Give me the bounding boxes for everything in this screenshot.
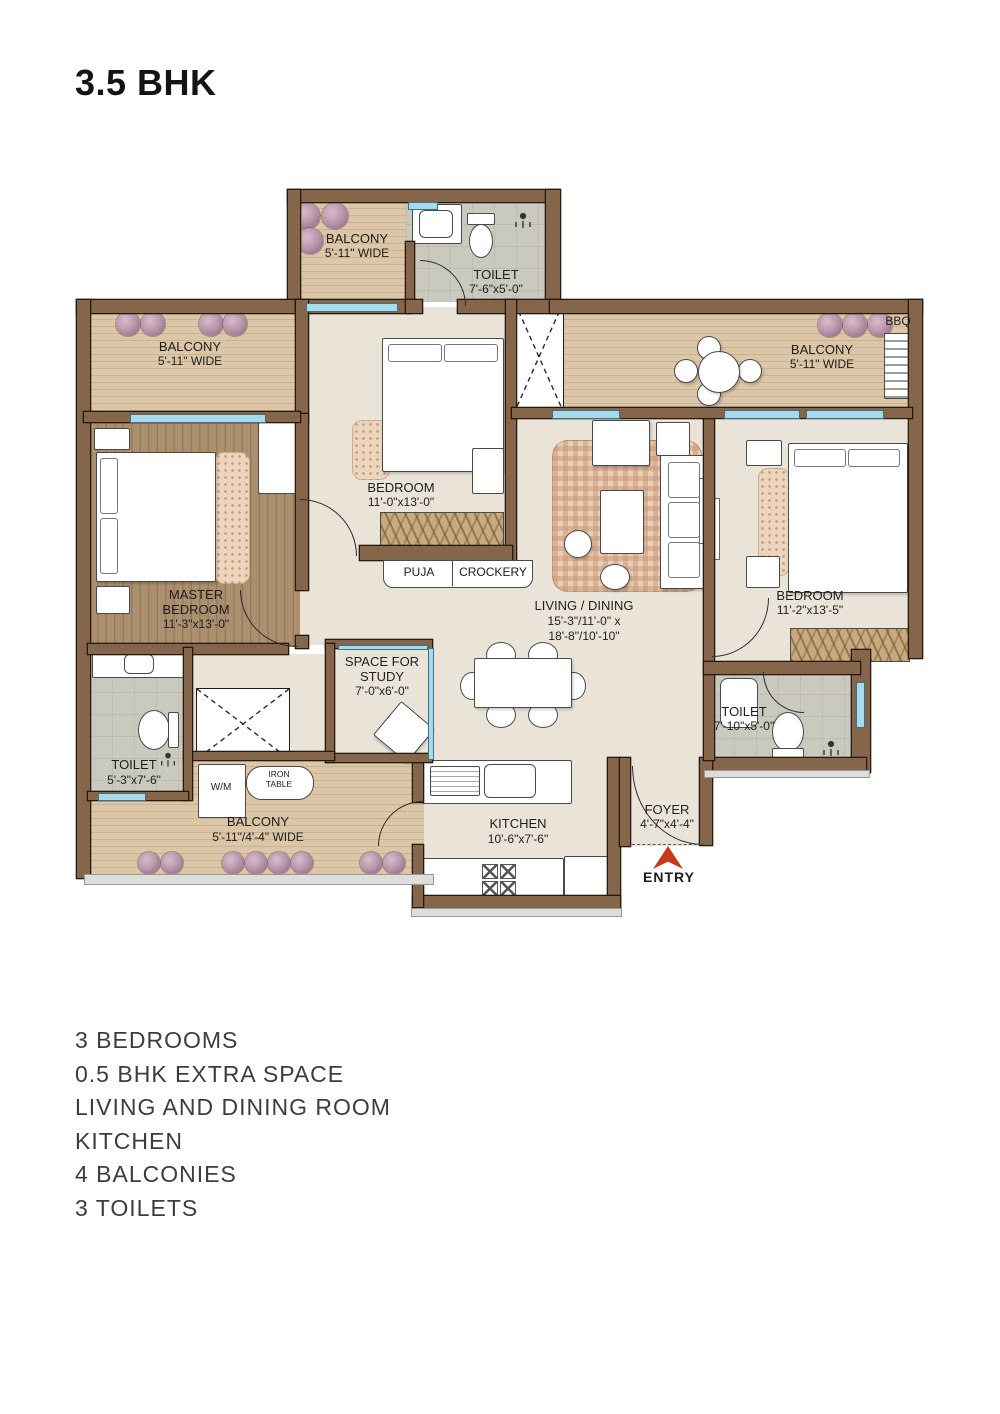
unit-divider bbox=[452, 560, 453, 586]
pillow bbox=[100, 458, 118, 514]
nightstand bbox=[94, 428, 130, 450]
pillow bbox=[100, 518, 118, 574]
room-dims: 4'-7"x4'-4" bbox=[640, 818, 694, 831]
feature-item: LIVING AND DINING ROOM bbox=[75, 1091, 391, 1125]
window bbox=[724, 410, 800, 419]
stool bbox=[600, 564, 630, 590]
bbq-grill bbox=[884, 333, 910, 399]
plant-icon bbox=[138, 852, 160, 874]
wall bbox=[288, 190, 558, 202]
sofa-cushion bbox=[668, 542, 700, 578]
sink-basin bbox=[419, 210, 453, 238]
stool bbox=[564, 530, 592, 558]
puja-label: PUJA bbox=[404, 566, 435, 579]
plant-icon bbox=[818, 313, 842, 337]
wall bbox=[909, 300, 922, 658]
entry-arrow-icon bbox=[653, 846, 683, 869]
shower-icon bbox=[818, 740, 844, 760]
sink-basin bbox=[124, 654, 154, 674]
room-label: BALCONY bbox=[159, 340, 221, 354]
window bbox=[306, 303, 398, 312]
plant-icon bbox=[843, 313, 867, 337]
room-label: BEDROOM bbox=[162, 603, 229, 617]
room-dims: 11'-3"x13'-0" bbox=[163, 618, 229, 631]
plant-icon bbox=[268, 852, 290, 874]
window bbox=[98, 793, 146, 801]
room-dims: 5'-11" WIDE bbox=[790, 358, 854, 371]
wall bbox=[296, 636, 308, 648]
shaft-x bbox=[514, 302, 564, 412]
toilet-wc-bowl bbox=[772, 712, 804, 752]
plant-icon bbox=[141, 312, 165, 336]
feature-item: KITCHEN bbox=[75, 1125, 391, 1159]
sofa-cushion bbox=[668, 502, 700, 538]
toilet-wc-tank bbox=[168, 712, 179, 748]
pillow bbox=[444, 344, 498, 362]
entry-threshold bbox=[632, 844, 702, 845]
room-dims: 11'-2"x13'-5" bbox=[777, 604, 843, 617]
room-label: LIVING / DINING bbox=[535, 599, 634, 613]
shaft-x-lines bbox=[197, 689, 289, 759]
balcony-chair bbox=[674, 359, 698, 383]
pillow bbox=[388, 344, 442, 362]
balcony-round-table bbox=[698, 351, 740, 393]
room-dims: 10'-6"x7'-6" bbox=[488, 833, 548, 846]
feature-item: 3 TOILETS bbox=[75, 1192, 391, 1226]
shower-icon bbox=[510, 212, 536, 232]
room-label: TOILET bbox=[473, 268, 518, 282]
room-label: FOYER bbox=[645, 803, 690, 817]
room-dims: 7'-0"x6'-0" bbox=[355, 685, 409, 698]
plant-icon bbox=[322, 203, 348, 229]
floor-plan-page: 3.5 BHK bbox=[0, 0, 1000, 1414]
wall bbox=[184, 648, 192, 800]
window bbox=[806, 410, 884, 419]
room-label: BEDROOM bbox=[776, 589, 843, 603]
wall bbox=[326, 754, 432, 762]
hob-burner bbox=[482, 881, 498, 896]
hob-burner bbox=[500, 881, 516, 896]
bedroom-top-desk bbox=[472, 448, 504, 494]
plant-icon bbox=[222, 852, 244, 874]
plant-icon bbox=[291, 852, 313, 874]
plant-icon bbox=[223, 312, 247, 336]
room-label: BALCONY bbox=[227, 815, 289, 829]
wall bbox=[413, 758, 423, 802]
pillow bbox=[794, 449, 846, 467]
dining-table bbox=[474, 658, 572, 708]
plant-icon bbox=[383, 852, 405, 874]
room-label: SPACE FOR bbox=[345, 655, 419, 669]
wm-label: W/M bbox=[211, 782, 232, 793]
wall bbox=[288, 190, 300, 312]
nightstand bbox=[746, 556, 780, 588]
plant-icon bbox=[199, 312, 223, 336]
glass-partition bbox=[428, 648, 434, 760]
room-label: STUDY bbox=[360, 670, 404, 684]
kitchen-sink-drainboard bbox=[430, 766, 480, 796]
room-dims: 15'-3"/11'-0" x bbox=[548, 615, 621, 628]
kitchen-sill bbox=[411, 908, 622, 917]
room-label: BALCONY bbox=[326, 232, 388, 246]
nightstand bbox=[96, 586, 130, 614]
bbq-label: BBQ bbox=[885, 315, 910, 328]
room-dims: 5'-11" WIDE bbox=[325, 247, 389, 260]
wall bbox=[360, 546, 512, 560]
toilet-sill bbox=[704, 770, 870, 778]
wall bbox=[608, 758, 620, 910]
dress-shaft-x bbox=[196, 688, 290, 760]
room-dims: 5'-11" WIDE bbox=[158, 355, 222, 368]
hob-burner bbox=[482, 864, 498, 879]
wall bbox=[184, 752, 334, 760]
toilet-wc-bowl bbox=[469, 224, 493, 258]
room-label: TOILET bbox=[721, 705, 766, 719]
plant-icon bbox=[360, 852, 382, 874]
room-label: MASTER bbox=[169, 588, 223, 602]
coffee-table bbox=[600, 490, 644, 554]
crockery-label: CROCKERY bbox=[459, 566, 527, 579]
bedroom-right-wardrobe bbox=[790, 628, 910, 662]
plant-icon bbox=[161, 852, 183, 874]
plant-icon bbox=[116, 312, 140, 336]
wall bbox=[546, 190, 560, 312]
wall bbox=[704, 410, 714, 760]
side-table bbox=[656, 422, 690, 456]
room-label: KITCHEN bbox=[489, 817, 546, 831]
plant-icon bbox=[245, 852, 267, 874]
iron-table-label: TABLE bbox=[266, 780, 292, 790]
room-dims: 5'-11"/4'-4" WIDE bbox=[212, 831, 304, 844]
plant-icon bbox=[297, 228, 323, 254]
room-dims: 7'-10"x5'-0" bbox=[714, 720, 774, 733]
shower-icon bbox=[156, 752, 180, 770]
wall bbox=[326, 644, 334, 762]
room-dims: 5'-3"x7'-6" bbox=[107, 774, 161, 787]
room-label: BALCONY bbox=[791, 343, 853, 357]
wall bbox=[620, 758, 630, 846]
balcony-rail-sill bbox=[84, 874, 434, 885]
wall bbox=[77, 300, 302, 313]
window bbox=[856, 682, 865, 728]
shaft-x-lines bbox=[515, 303, 563, 411]
feature-item: 0.5 BHK EXTRA SPACE bbox=[75, 1058, 391, 1092]
room-dims: 11'-0"x13'-0" bbox=[368, 496, 434, 509]
pillow bbox=[848, 449, 900, 467]
room-dims: 18'-8"/10'-10" bbox=[548, 630, 619, 643]
wall bbox=[550, 300, 922, 313]
sofa-cushion bbox=[668, 462, 700, 498]
room-label: TOILET bbox=[111, 758, 156, 772]
feature-list: 3 BEDROOMS 0.5 BHK EXTRA SPACE LIVING AN… bbox=[75, 1024, 391, 1225]
kitchen-sink-basin bbox=[484, 764, 536, 798]
master-rug bbox=[214, 452, 250, 584]
window bbox=[552, 410, 620, 419]
toilet-wc-bowl bbox=[138, 710, 170, 750]
nightstand bbox=[746, 440, 782, 466]
window bbox=[130, 414, 266, 423]
wall bbox=[296, 300, 308, 422]
glass-ledge bbox=[338, 645, 428, 650]
wall bbox=[506, 300, 516, 562]
wall bbox=[406, 242, 414, 304]
room-label: BEDROOM bbox=[367, 481, 434, 495]
feature-item: 4 BALCONIES bbox=[75, 1158, 391, 1192]
bedroom-top-wardrobe bbox=[380, 512, 504, 550]
armchair bbox=[592, 420, 650, 466]
window bbox=[408, 202, 438, 210]
balcony-chair bbox=[738, 359, 762, 383]
hob-burner bbox=[500, 864, 516, 879]
entry-label: ENTRY bbox=[643, 869, 695, 885]
tv-unit bbox=[713, 498, 720, 560]
room-dims: 7'-6"x5'-0" bbox=[469, 283, 523, 296]
feature-item: 3 BEDROOMS bbox=[75, 1024, 391, 1058]
